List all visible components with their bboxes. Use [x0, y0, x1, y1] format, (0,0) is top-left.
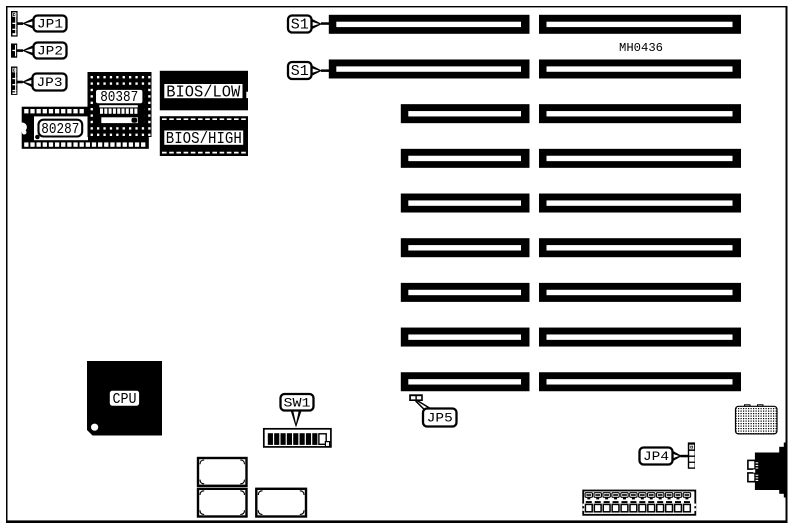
svg-text:SW1: SW1 — [284, 395, 311, 410]
svg-text:JP1: JP1 — [37, 17, 63, 32]
svg-text:MH0436: MH0436 — [619, 41, 663, 55]
svg-text:S1: S1 — [291, 18, 309, 34]
svg-text:JP4: JP4 — [643, 449, 669, 464]
svg-text:CPU: CPU — [113, 392, 137, 408]
svg-text:S1: S1 — [291, 64, 309, 80]
svg-text:80287: 80287 — [41, 122, 79, 138]
svg-text:JP2: JP2 — [37, 44, 63, 59]
svg-text:80387: 80387 — [100, 90, 138, 106]
svg-text:BIOS/HIGH: BIOS/HIGH — [166, 129, 242, 148]
svg-text:JP5: JP5 — [427, 411, 453, 426]
svg-text:JP3: JP3 — [37, 75, 63, 90]
svg-text:BIOS/LOW: BIOS/LOW — [166, 82, 240, 101]
